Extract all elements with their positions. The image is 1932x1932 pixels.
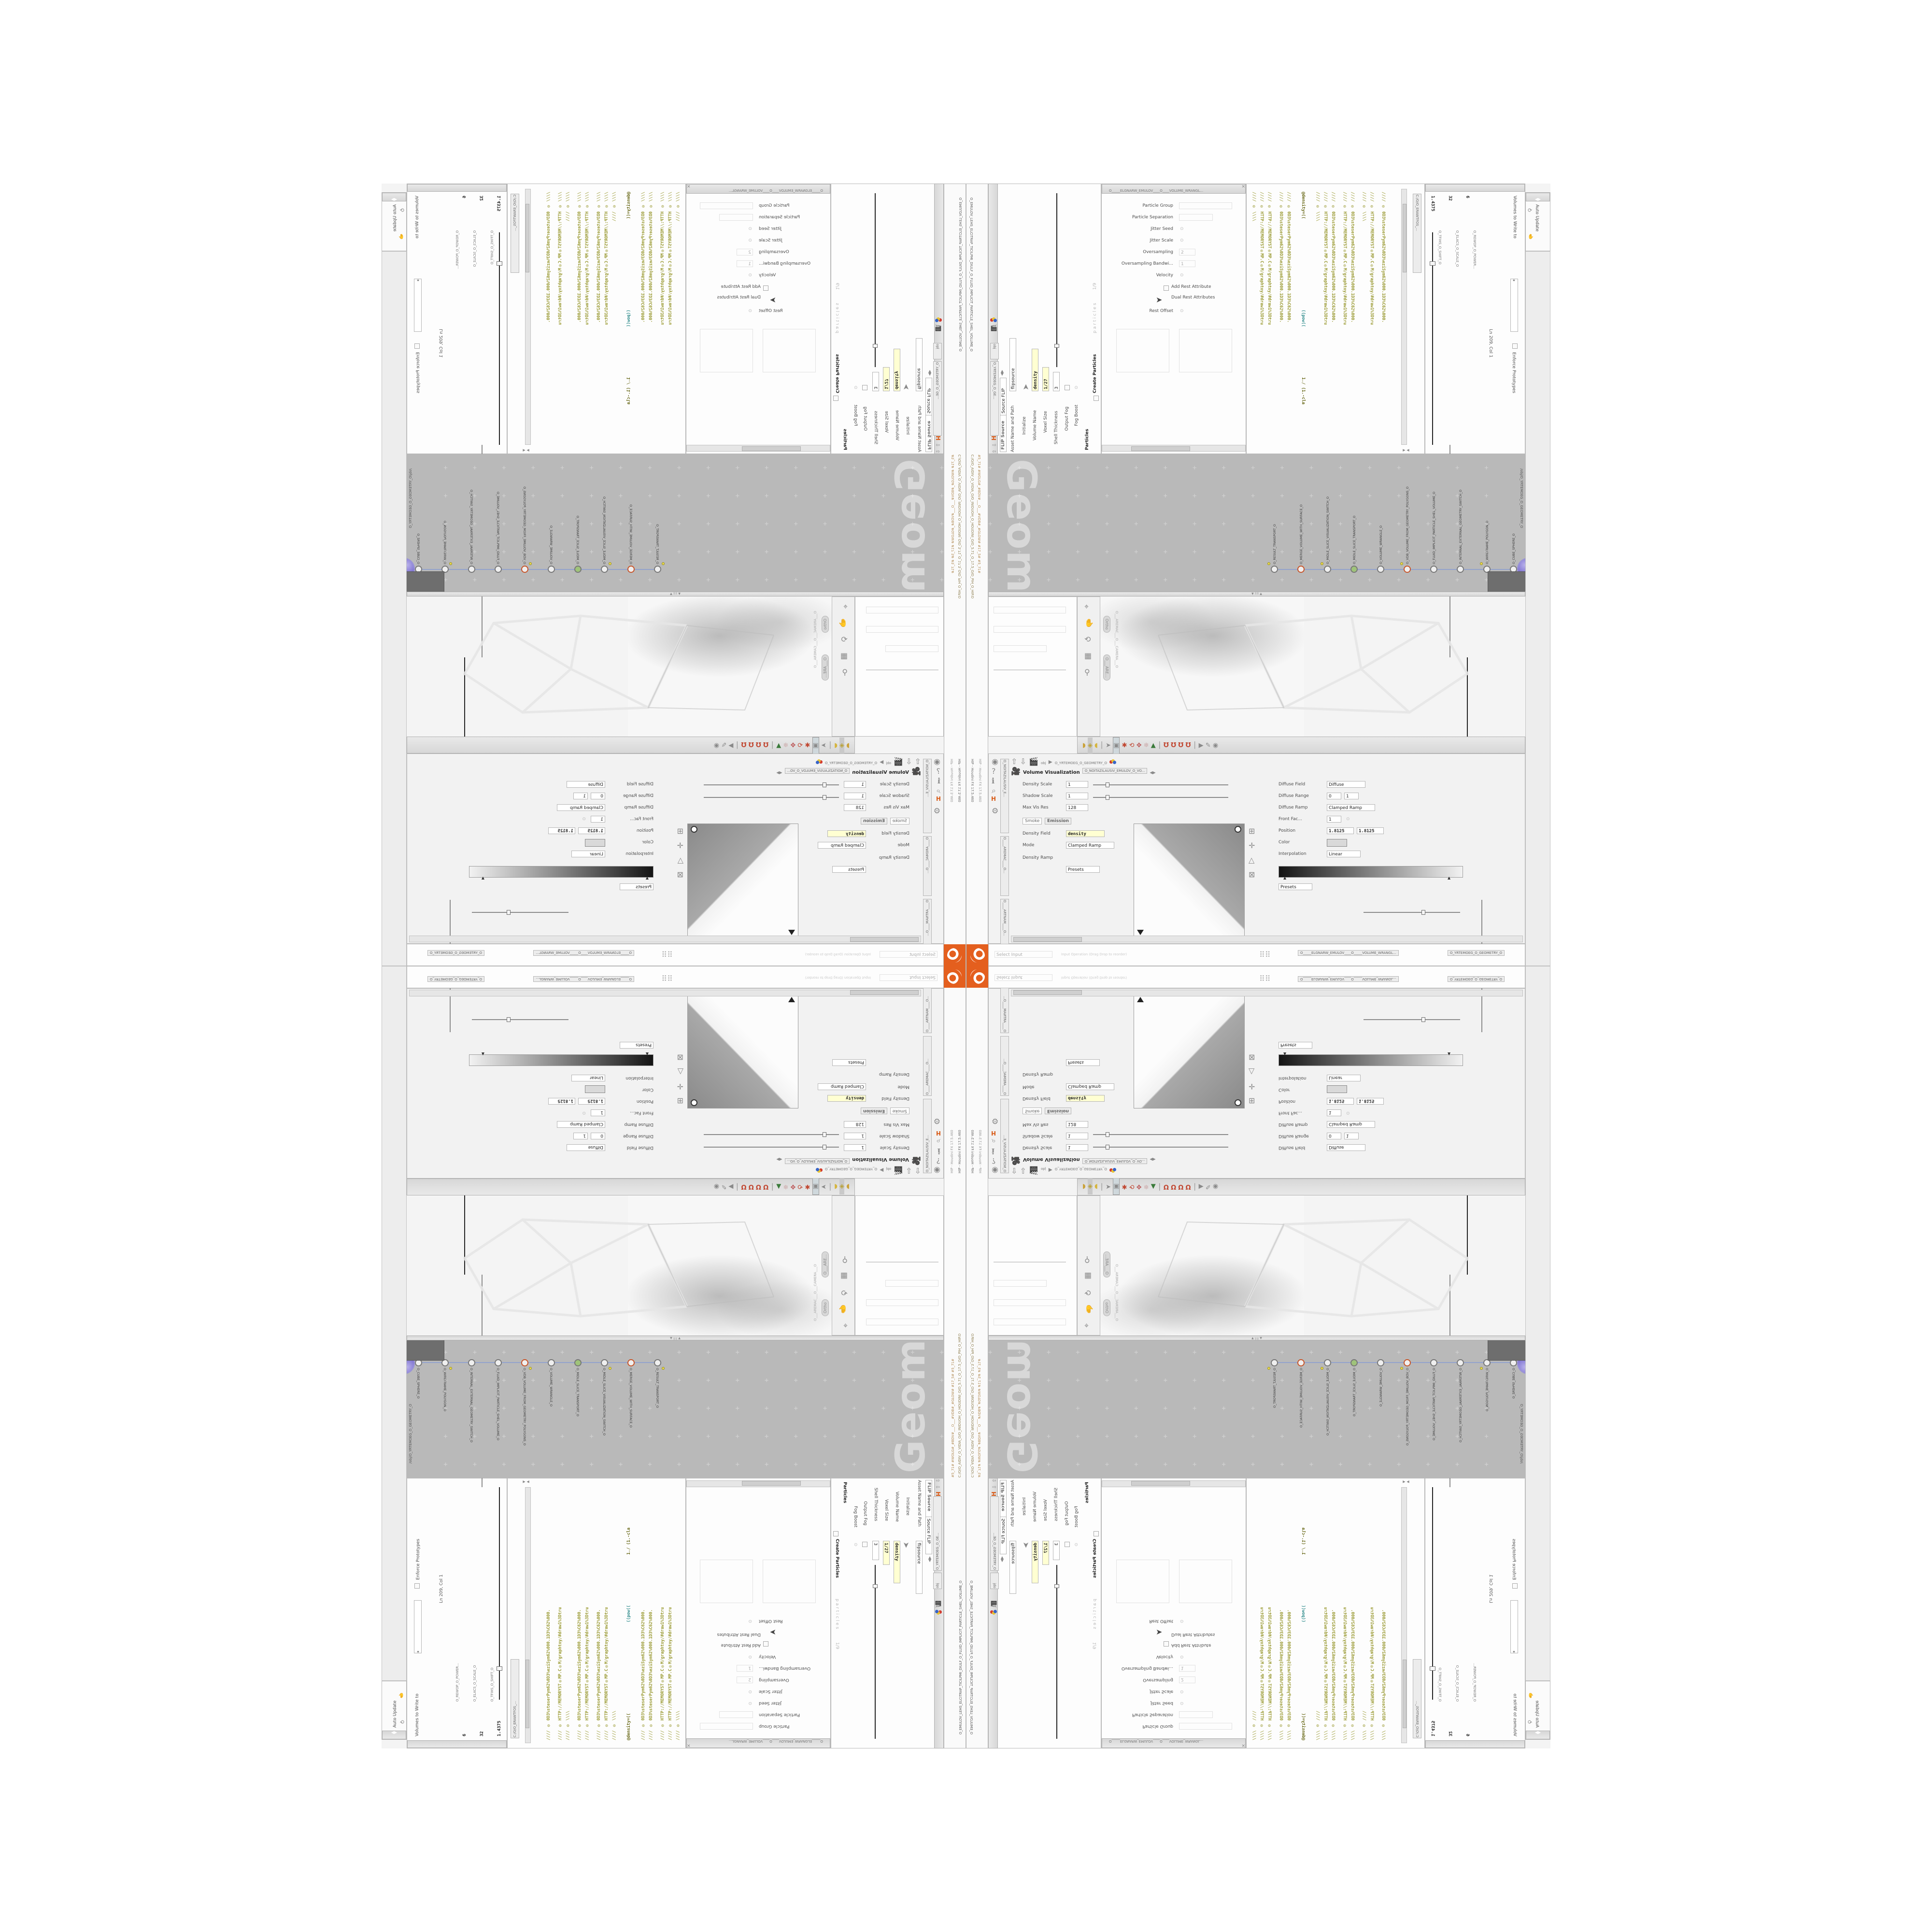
close-icon[interactable]: ✕ (1241, 1743, 1245, 1747)
viz-path-geo[interactable]: O_YRTEMOEG_O_GEOMETRY_O (825, 761, 877, 765)
right-edge-scroll[interactable] (1525, 966, 1550, 1681)
jitter-seed-radio-icon[interactable]: ⊙ (1180, 227, 1184, 231)
viz-camera-tab[interactable]: O____AREMAC____O... (923, 1036, 932, 1096)
hand-icon[interactable]: ✋ (398, 234, 404, 240)
node-1[interactable] (627, 1359, 635, 1366)
tool-snow-icon[interactable]: ❄ (783, 1179, 788, 1194)
tool-arrow-icon[interactable]: ➤ (821, 738, 826, 753)
wrangle-code-pane[interactable]: //// ◎ \\\\ //// ◎ HTTP://MEMORYST◎MP.C◎… (1246, 1478, 1425, 1748)
volumes-field[interactable]: * (414, 279, 422, 332)
window-titlebar[interactable]: O_EMULOV_LEHS_ELCITRAP_TICILPMI_DIULF_O_… (966, 966, 988, 1748)
pane2-row-field-5[interactable]: 1 (1179, 1665, 1195, 1672)
network-context-tab[interactable]: /obj/O_YRTEMOEG_O_GEOMETRY_O (1520, 469, 1523, 584)
code-file-tab[interactable]: C:/O/O_ERAWTFOS_... (511, 194, 519, 273)
wrangle-net-tab[interactable]: O_____ELGNARW_EMULOV____O_____VOLUME_WRA… (533, 950, 634, 956)
output-fog-checkbox[interactable] (1065, 1542, 1070, 1547)
magnet-icon-1[interactable]: Ʊ (763, 1179, 768, 1194)
flip-source-tab[interactable]: FLIP Source (1000, 1480, 1007, 1519)
param-value-0[interactable]: 1.4375 (497, 196, 502, 229)
node-7[interactable] (468, 566, 475, 573)
auto-update-label[interactable]: Auto Update (1534, 204, 1539, 243)
slider-handle[interactable] (1054, 344, 1059, 348)
window-titlebar[interactable]: O_EMULOV_LEHS_ELCITRAP_TICILPMI_DIULF_O_… (944, 184, 966, 966)
tool-play-icon[interactable]: ▶ (1199, 1179, 1204, 1194)
viz-hscroll-thumb[interactable] (1013, 937, 1082, 942)
viz-clamped-value[interactable]: Clamped Ramp (557, 1121, 605, 1128)
density-ramp-editor[interactable] (687, 824, 798, 938)
wrangle-net-tab[interactable]: O_____ELGNARW_EMULOV____O_____VOLUME_WRA… (1298, 950, 1399, 956)
density-ramp-editor[interactable] (1134, 824, 1245, 938)
viz-diffuse-field[interactable]: Diffuse (567, 1144, 605, 1151)
volume-name-field[interactable]: density (894, 349, 900, 391)
viz-front-value[interactable]: 1 (1327, 816, 1341, 823)
velocity-radio-icon[interactable]: ⊙ (748, 1654, 752, 1659)
code-scrollbar[interactable] (525, 189, 531, 445)
pane-up-icon[interactable]: ⇧ (935, 1478, 940, 1482)
flip-window-tab[interactable]: O_EMULOV_LEHS_ELCITRAP_TICILPMI_DIULF_O_… (969, 1493, 973, 1734)
flip-asset-field[interactable]: flipsource (916, 338, 923, 391)
add-rest-checkbox[interactable] (1164, 1641, 1169, 1647)
node-1[interactable] (1297, 1359, 1305, 1366)
param-slider-handle-0[interactable] (497, 261, 502, 266)
viz-hscroll[interactable] (1011, 936, 1523, 942)
viz-mode-value[interactable]: Clamped Ramp (1066, 842, 1114, 849)
viewport[interactable]: Ortho O___ARE... O___AREMAC___O___CAMERA… (407, 597, 832, 737)
viz-side-tab[interactable]: O_NOITAZILAUSIV_E... (1000, 759, 1009, 833)
viz-slider-handle-1[interactable] (823, 1132, 826, 1137)
pane2-ghost-b[interactable] (763, 329, 816, 372)
wrangle-net-tab[interactable]: O_____ELGNARW_EMULOV____O_____VOLUME_WRA… (533, 976, 634, 982)
viz-front-value[interactable]: 1 (591, 1109, 605, 1116)
viz-hscroll-thumb[interactable] (850, 990, 919, 995)
chevron-pair-icon[interactable]: ◀▶ (928, 1556, 932, 1562)
rest-arrow-icon[interactable]: ➤ (770, 1628, 776, 1637)
node-flag-0[interactable] (662, 1367, 665, 1370)
viz-slider-1[interactable] (704, 1134, 839, 1135)
node-0[interactable] (654, 566, 661, 573)
pane2-ghost-b[interactable] (1116, 329, 1169, 372)
pane2-row-field-5[interactable]: 1 (737, 260, 753, 267)
viz-main-tab[interactable]: O_NOITAZILAUSIV_EMULOV_O_VO... (1082, 1158, 1147, 1164)
tool-gear-red-icon[interactable]: ✱ (805, 738, 810, 753)
viz-magnifier-icon[interactable]: ⌕ (936, 786, 940, 796)
tool-play-icon[interactable]: ▶ (728, 1179, 733, 1194)
viz-density-field[interactable]: density (1066, 1095, 1105, 1102)
viz-density-field[interactable]: density (827, 1095, 866, 1102)
ramp-cross-icon[interactable]: ✛ (1249, 1082, 1255, 1091)
viz-hscroll[interactable] (409, 990, 921, 996)
taskbar-entry-2[interactable]: HIP - Houdini FX 17.5.460 (978, 759, 982, 904)
pane2-tab[interactable]: O_____ELGNARW_EMULOV____O____VOLUME_WRAN… (729, 189, 823, 193)
wrangle-geo-tab[interactable]: O_YRTEMOEG_O_GEOMETRY_O (427, 976, 484, 982)
param-slider-0[interactable] (499, 1487, 500, 1700)
auto-update-header[interactable]: ◀▶ (1526, 1731, 1550, 1739)
select-input-field[interactable]: Select Input (994, 974, 1052, 981)
viz-tab-emission[interactable]: Emission (1045, 818, 1071, 824)
viz-range-handle[interactable] (1421, 1017, 1425, 1022)
tool-gear-red-icon[interactable]: ✱ (1122, 1179, 1127, 1194)
tool-diamond-icon[interactable]: ◈ (1088, 738, 1093, 753)
code-file-tab[interactable]: C:/O/O_ERAWTFOS_... (511, 1659, 519, 1738)
viz-camera-tab[interactable]: O____AREMAC____O... (1000, 836, 1009, 896)
auto-update-label[interactable]: Auto Update (393, 204, 398, 243)
pane2-row-field-1[interactable] (1179, 214, 1213, 221)
create-particles-checkbox[interactable] (833, 1531, 838, 1536)
viz-tab-emission[interactable]: Emission (861, 818, 887, 824)
viz-info-icon[interactable]: ℹ (938, 776, 940, 785)
chevron-pair-icon[interactable]: ◀▶ (928, 370, 932, 376)
viz-slider-0[interactable] (1093, 784, 1228, 785)
pane2-ghost-a[interactable] (1179, 329, 1232, 372)
close-icon[interactable]: ✕ (687, 185, 691, 189)
diffuse-ramp-strip[interactable] (469, 1054, 653, 1066)
wrangle-code-pane[interactable]: //// ◎ \\\\ //// ◎ HTTP://MEMORYST◎MP.C◎… (507, 1478, 686, 1748)
viz-row-field-0[interactable]: 1 (844, 781, 866, 788)
flip-source-tab[interactable]: FLIP Source (925, 413, 932, 452)
view-select-icon[interactable]: ⌖ (1084, 602, 1089, 611)
auto-update-label[interactable]: Auto Update (1534, 1689, 1539, 1728)
viz-path-obj[interactable]: obj (886, 1167, 891, 1171)
viz-down-icon[interactable]: ⇩ (906, 1166, 912, 1175)
pane-down-icon[interactable]: ⇩ (992, 1485, 997, 1489)
flip-path-geo-tab[interactable]: O_YRTEMOEG_O_GE... (990, 1496, 999, 1571)
node-2[interactable] (601, 566, 608, 573)
viz-presets-left[interactable]: Presets (832, 866, 866, 873)
hand-icon[interactable]: ✋ (1528, 1692, 1534, 1698)
node-4[interactable] (548, 1359, 555, 1366)
node-3[interactable] (1350, 566, 1358, 573)
network-context-tab[interactable]: /obj/O_YRTEMOEG_O_GEOMETRY_O (409, 469, 412, 584)
viz-range-hi[interactable]: 1 (1344, 1133, 1359, 1139)
tool-rot-icon[interactable]: ⟲ (797, 1179, 803, 1194)
initialize-arrow-icon[interactable]: ➤ (1021, 384, 1030, 390)
viz-main-tab[interactable]: O_NOITAZILAUSIV_EMULOV_O_VO... (1082, 768, 1147, 774)
source-flip-selector[interactable]: Source FLIP (925, 1517, 932, 1554)
volume-name-field[interactable]: density (894, 1541, 900, 1583)
jitter-scale-radio-icon[interactable]: ⊙ (748, 238, 752, 243)
viz-presets-right[interactable]: Presets (1279, 1042, 1312, 1049)
velocity-radio-icon[interactable]: ⊙ (1180, 273, 1184, 278)
node-flag-3[interactable] (1480, 562, 1483, 565)
viz-range-hi[interactable]: 1 (573, 1133, 588, 1139)
ramp-add-icon[interactable]: ⊞ (1249, 1096, 1255, 1106)
view-pin-icon[interactable]: ⚲ (842, 668, 848, 677)
diffuse-ramp-strip[interactable] (1279, 1054, 1463, 1066)
code-scrollbar[interactable] (1401, 189, 1407, 445)
voxel-size-field[interactable]: 1/27 (1042, 367, 1049, 391)
magnet-icon-3[interactable]: Ʊ (749, 738, 754, 753)
ramp-cross-icon[interactable]: ✛ (677, 1082, 683, 1091)
chevron-left-right-icon[interactable]: ◀▶ (391, 197, 397, 201)
wrangle-geo-tab[interactable]: O_YRTEMOEG_O_GEOMETRY_O (427, 950, 484, 956)
shell-thickness-slider[interactable] (1056, 1565, 1057, 1739)
node-flag-0[interactable] (1267, 1367, 1270, 1370)
magnet-icon-2[interactable]: Ʊ (756, 1179, 761, 1194)
initialize-arrow-icon[interactable]: ➤ (902, 384, 911, 390)
tool-brush-icon[interactable]: ✎ (721, 738, 726, 753)
viz-front-radio-icon[interactable]: ⊙ (582, 817, 586, 822)
ramp-add-icon[interactable]: ⊞ (677, 1096, 683, 1106)
viz-side-tab[interactable]: O_NOITAZILAUSIV_E... (923, 1099, 932, 1173)
jitter-seed-radio-icon[interactable]: ⊙ (1180, 1701, 1184, 1705)
magnet-icon-4[interactable]: Ʊ (1186, 738, 1191, 753)
pane2-ghost-a[interactable] (1179, 1560, 1232, 1603)
volumes-field[interactable]: * (414, 1600, 422, 1653)
select-input-field[interactable]: Select Input (880, 974, 938, 981)
rest-offset-radio-icon[interactable]: ⊙ (748, 309, 752, 313)
viz-tab-smoke[interactable]: Smoke (890, 1108, 909, 1114)
ramp-strip-handle-a[interactable]: ▲ (1283, 1052, 1286, 1056)
pane2-ghost-b[interactable] (763, 1560, 816, 1603)
chevron-left-right-icon[interactable]: ◀▶ (1535, 1731, 1541, 1735)
density-ramp-editor[interactable] (1134, 994, 1245, 1108)
tool-gear-red-icon[interactable]: ✱ (1122, 738, 1127, 753)
viz-slider-handle-0[interactable] (1106, 1145, 1109, 1150)
viz-range-handle[interactable] (507, 1017, 511, 1022)
viz-gear-icon[interactable]: ⚙ (992, 806, 998, 815)
viz-slider-0[interactable] (1093, 1147, 1228, 1148)
viz-range-slider[interactable] (1364, 1019, 1460, 1020)
select-input-field[interactable]: Select Input (994, 951, 1052, 958)
flip-path-obj-tab[interactable]: obj (990, 343, 999, 359)
viz-gear-icon[interactable]: ⚙ (992, 1117, 998, 1126)
diffuse-ramp-strip[interactable] (1279, 866, 1463, 878)
pane-up-icon[interactable]: ⇧ (992, 450, 997, 454)
node-flag-2[interactable] (529, 1367, 532, 1370)
enforce-checkbox[interactable] (414, 1583, 420, 1589)
code-scroll-arrows[interactable]: ◀ ▶ (1402, 447, 1410, 454)
viz-pos-0[interactable]: 1.8125 (578, 1098, 605, 1105)
viz-mode-value[interactable]: Clamped Ramp (1066, 1083, 1114, 1090)
node-7[interactable] (468, 1359, 475, 1366)
code-scroll-arrows[interactable]: ◀ ▶ (522, 447, 530, 454)
splitter-bar[interactable]: ▼ ⠿⠿ ▲ (407, 592, 944, 597)
ramp-handle-top[interactable] (1235, 1099, 1241, 1106)
density-ramp-editor[interactable] (687, 994, 798, 1108)
node-flag-2[interactable] (529, 562, 532, 565)
ramp-handle-top[interactable] (691, 1099, 697, 1106)
tool-play-icon[interactable]: ▶ (1199, 738, 1204, 753)
select-input-field[interactable]: Select Input (880, 951, 938, 958)
node-6[interactable] (1430, 1359, 1437, 1366)
viz-range-slider[interactable] (1364, 912, 1460, 913)
viz-range-slider[interactable] (472, 912, 568, 913)
viz-help-icon[interactable]: ? (937, 1156, 941, 1165)
viz-density-field[interactable]: density (827, 830, 866, 837)
chevron-pair-icon[interactable]: ◀▶ (1000, 370, 1004, 376)
viz-slider-handle-0[interactable] (1106, 782, 1109, 787)
node-2[interactable] (1324, 1359, 1331, 1366)
pane2-row-field-0[interactable] (700, 202, 753, 209)
viz-range-hi[interactable]: 1 (1344, 793, 1359, 799)
node-0[interactable] (1271, 1359, 1278, 1366)
view-box-icon[interactable]: ▦ (840, 1272, 848, 1281)
voxel-size-field[interactable]: 1/27 (883, 1541, 890, 1565)
network-editor[interactable]: ++++++++++++++++++++++++++++++++++++++++… (988, 1340, 1525, 1478)
add-rest-checkbox[interactable] (1164, 285, 1169, 291)
splitter-bar[interactable]: ▼ ⠿⠿ ▲ (988, 1335, 1525, 1340)
tool-rot-icon[interactable]: ⟲ (797, 738, 803, 753)
flip-path-geo-tab[interactable]: O_YRTEMOEG_O_GE... (990, 361, 999, 436)
viz-front-radio-icon[interactable]: ⊙ (1346, 817, 1350, 822)
magnet-icon-3[interactable]: Ʊ (1178, 1179, 1183, 1194)
velocity-radio-icon[interactable]: ⊙ (1180, 1654, 1184, 1659)
network-editor[interactable]: ++++++++++++++++++++++++++++++++++++++++… (407, 1340, 944, 1478)
rest-offset-radio-icon[interactable]: ⊙ (748, 1619, 752, 1623)
source-flip-selector[interactable]: Source FLIP (1000, 1517, 1007, 1554)
ramp-handle-bottom[interactable] (1137, 930, 1144, 935)
grip-dots-icon[interactable]: ⠿⠿ (1259, 973, 1270, 982)
view-orbit-icon[interactable]: ⟲ (1084, 1288, 1091, 1297)
param-value-0[interactable]: 1.4375 (1430, 1703, 1435, 1736)
node-flag-3[interactable] (1480, 1367, 1483, 1370)
pane2-row-field-4[interactable]: 2 (737, 1676, 753, 1683)
viz-pos-0[interactable]: 1.8125 (578, 827, 605, 834)
node-flag-0[interactable] (1267, 562, 1270, 565)
magnet-icon-2[interactable]: Ʊ (1171, 1179, 1176, 1194)
ramp-handle-bottom[interactable] (1137, 997, 1144, 1002)
ramp-strip-handle-a[interactable]: ▲ (1283, 876, 1286, 880)
tool-rot-icon[interactable]: ⟲ (1129, 738, 1135, 753)
network-context-tab[interactable]: /obj/O_YRTEMOEG_O_GEOMETRY_O (409, 1348, 412, 1463)
pane2-scroll-thumb[interactable] (1131, 446, 1190, 451)
viz-chevrons-icon[interactable]: ◀▶ (776, 1157, 782, 1162)
pane2-tab[interactable]: O_____ELGNARW_EMULOV____O____VOLUME_WRAN… (1109, 1739, 1203, 1743)
tool-wheel-icon[interactable]: ◉ (1213, 738, 1218, 753)
volume-name-field[interactable]: density (1032, 1541, 1038, 1583)
viz-diffuse-field[interactable]: Diffuse (567, 781, 605, 788)
node-1[interactable] (1297, 566, 1305, 573)
magnet-icon-1[interactable]: Ʊ (1164, 738, 1169, 753)
view-pin-icon[interactable]: ⚲ (1084, 1255, 1090, 1264)
ramp-del-icon[interactable]: ⊠ (1249, 870, 1255, 879)
taskbar-entry[interactable]: HIP - Houdini FX 17.5.460 (970, 759, 974, 904)
viz-front-radio-icon[interactable]: ⊙ (1346, 1110, 1350, 1115)
shell-thickness-slider[interactable] (1056, 193, 1057, 367)
create-particles-checkbox[interactable] (1094, 1531, 1099, 1536)
viz-slider-handle-0[interactable] (823, 782, 826, 787)
viz-density-field[interactable]: density (1066, 830, 1105, 837)
tool-gear-red-icon[interactable]: ✱ (805, 1179, 810, 1194)
viz-clamped-value[interactable]: Clamped Ramp (1327, 1121, 1375, 1128)
viz-mode-value[interactable]: Clamped Ramp (818, 842, 866, 849)
node-0[interactable] (1271, 566, 1278, 573)
viz-interp-value[interactable]: Linear (1327, 851, 1361, 857)
param-slider-handle-0[interactable] (497, 1666, 502, 1671)
ramp-strip-handle-b[interactable]: ▲ (1448, 1052, 1450, 1056)
magnet-icon-4[interactable]: Ʊ (741, 1179, 746, 1194)
node-2[interactable] (601, 1359, 608, 1366)
window-titlebar[interactable]: O_EMULOV_LEHS_ELCITRAP_TICILPMI_DIULF_O_… (944, 966, 966, 1748)
viz-mode-value[interactable]: Clamped Ramp (818, 1083, 866, 1090)
wrangle-geo-tab[interactable]: O_YRTEMOEG_O_GEOMETRY_O (1448, 950, 1505, 956)
flip-window-tab[interactable]: O_EMULOV_LEHS_ELCITRAP_TICILPMI_DIULF_O_… (959, 1493, 963, 1734)
viz-side-tab[interactable]: O_NOITAZILAUSIV_E... (923, 759, 932, 833)
viz-row-field-0[interactable]: 1 (1066, 781, 1088, 788)
pane-down-icon[interactable]: ⇩ (935, 443, 940, 447)
viz-slider-1[interactable] (704, 797, 839, 798)
param-value-1[interactable]: 32 (1448, 1703, 1452, 1736)
node-flag-3[interactable] (449, 1367, 452, 1370)
output-fog-checkbox[interactable] (862, 1542, 867, 1547)
viz-interp-value[interactable]: Linear (571, 1075, 605, 1081)
tool-tri-icon[interactable]: ▲ (776, 738, 781, 753)
viz-range-lo[interactable]: 0 (591, 1133, 605, 1139)
tool-arrow-icon[interactable]: ➤ (1106, 738, 1111, 753)
voxel-size-field[interactable]: 1/27 (1042, 1541, 1049, 1565)
param-slider-handle-0[interactable] (1430, 261, 1435, 266)
magnet-icon-3[interactable]: Ʊ (1178, 738, 1183, 753)
ramp-strip-handle-b[interactable]: ▲ (482, 876, 484, 880)
node-1[interactable] (627, 566, 635, 573)
viz-range-slider[interactable] (472, 1019, 568, 1020)
node-2[interactable] (1324, 566, 1331, 573)
taskbar-entry-2[interactable]: HIP - Houdini FX 17.5.460 (978, 1028, 982, 1173)
viz-magnifier-icon[interactable]: ⌕ (936, 1136, 940, 1146)
viz-hscroll[interactable] (1011, 990, 1523, 996)
pane2-row-field-1[interactable] (1179, 1711, 1213, 1718)
node-4[interactable] (1377, 566, 1384, 573)
code-scroll-thumb[interactable] (526, 204, 529, 272)
viz-diffuse-field[interactable]: Diffuse (1327, 781, 1365, 788)
pane2-tab[interactable]: O_____ELGNARW_EMULOV____O____VOLUME_WRAN… (729, 1739, 823, 1743)
velocity-radio-icon[interactable]: ⊙ (748, 273, 752, 278)
code-scrollbar[interactable] (1401, 1487, 1407, 1743)
viz-path-geo[interactable]: O_YRTEMOEG_O_GEOMETRY_O (1055, 1167, 1107, 1171)
pane2-scrollbar[interactable] (686, 445, 830, 452)
ramp-add-icon[interactable]: ⊞ (1249, 826, 1255, 836)
node-flag-2[interactable] (1400, 562, 1403, 565)
node-7[interactable] (1457, 1359, 1464, 1366)
tool-select-icon[interactable]: ◗ (1082, 1179, 1086, 1194)
viz-slider-0[interactable] (704, 784, 839, 785)
viz-range-handle[interactable] (1421, 910, 1425, 915)
viz-tab-smoke[interactable]: Smoke (1023, 818, 1042, 824)
viz-clamped-value[interactable]: Clamped Ramp (557, 804, 605, 811)
code-scroll-thumb[interactable] (1403, 204, 1406, 272)
viz-presets-left[interactable]: Presets (1066, 1059, 1100, 1066)
node-4[interactable] (1377, 1359, 1384, 1366)
auto-update-header[interactable]: ◀▶ (382, 1731, 406, 1739)
pane2-row-field-5[interactable]: 1 (1179, 260, 1195, 267)
viewport[interactable]: Ortho O___ARE... O___AREMAC___O___CAMERA… (1100, 597, 1525, 737)
wrangle-code-pane[interactable]: //// ◎ \\\\ //// ◎ HTTP://MEMORYST◎MP.C◎… (507, 184, 686, 454)
network-context-tab[interactable]: /obj/O_YRTEMOEG_O_GEOMETRY_O (1520, 1348, 1523, 1463)
add-rest-checkbox[interactable] (763, 285, 768, 291)
tool-paint-icon[interactable]: ◖ (1094, 1179, 1098, 1194)
pane2-row-field-0[interactable] (1179, 1723, 1232, 1730)
enforce-checkbox[interactable] (414, 343, 420, 349)
chevron-pair-icon[interactable]: ◀▶ (1000, 1556, 1004, 1562)
jitter-seed-radio-icon[interactable]: ⊙ (748, 1701, 752, 1705)
view-pin-icon[interactable]: ⚲ (1084, 668, 1090, 677)
tool-brush-icon[interactable]: ✎ (1206, 1179, 1211, 1194)
node-0[interactable] (654, 1359, 661, 1366)
node-flag-3[interactable] (449, 562, 452, 565)
viz-row-field-2[interactable]: 128 (1066, 1121, 1088, 1128)
auto-update-label[interactable]: Auto Update (393, 1689, 398, 1728)
viz-range-handle[interactable] (507, 910, 511, 915)
node-5[interactable] (521, 566, 528, 573)
chevron-left-right-icon[interactable]: ◀▶ (391, 1731, 397, 1735)
ramp-strip-handle-a[interactable]: ▲ (646, 876, 649, 880)
viz-slider-handle-1[interactable] (1106, 1132, 1109, 1137)
node-5[interactable] (1404, 1359, 1411, 1366)
wrangle-net-tab[interactable]: O_____ELGNARW_EMULOV____O_____VOLUME_WRA… (1298, 976, 1399, 982)
flip-path-obj-tab[interactable]: obj (933, 343, 942, 359)
viz-target-icon[interactable]: ◉ (934, 1166, 940, 1175)
viz-gear-icon[interactable]: ⚙ (934, 1117, 940, 1126)
